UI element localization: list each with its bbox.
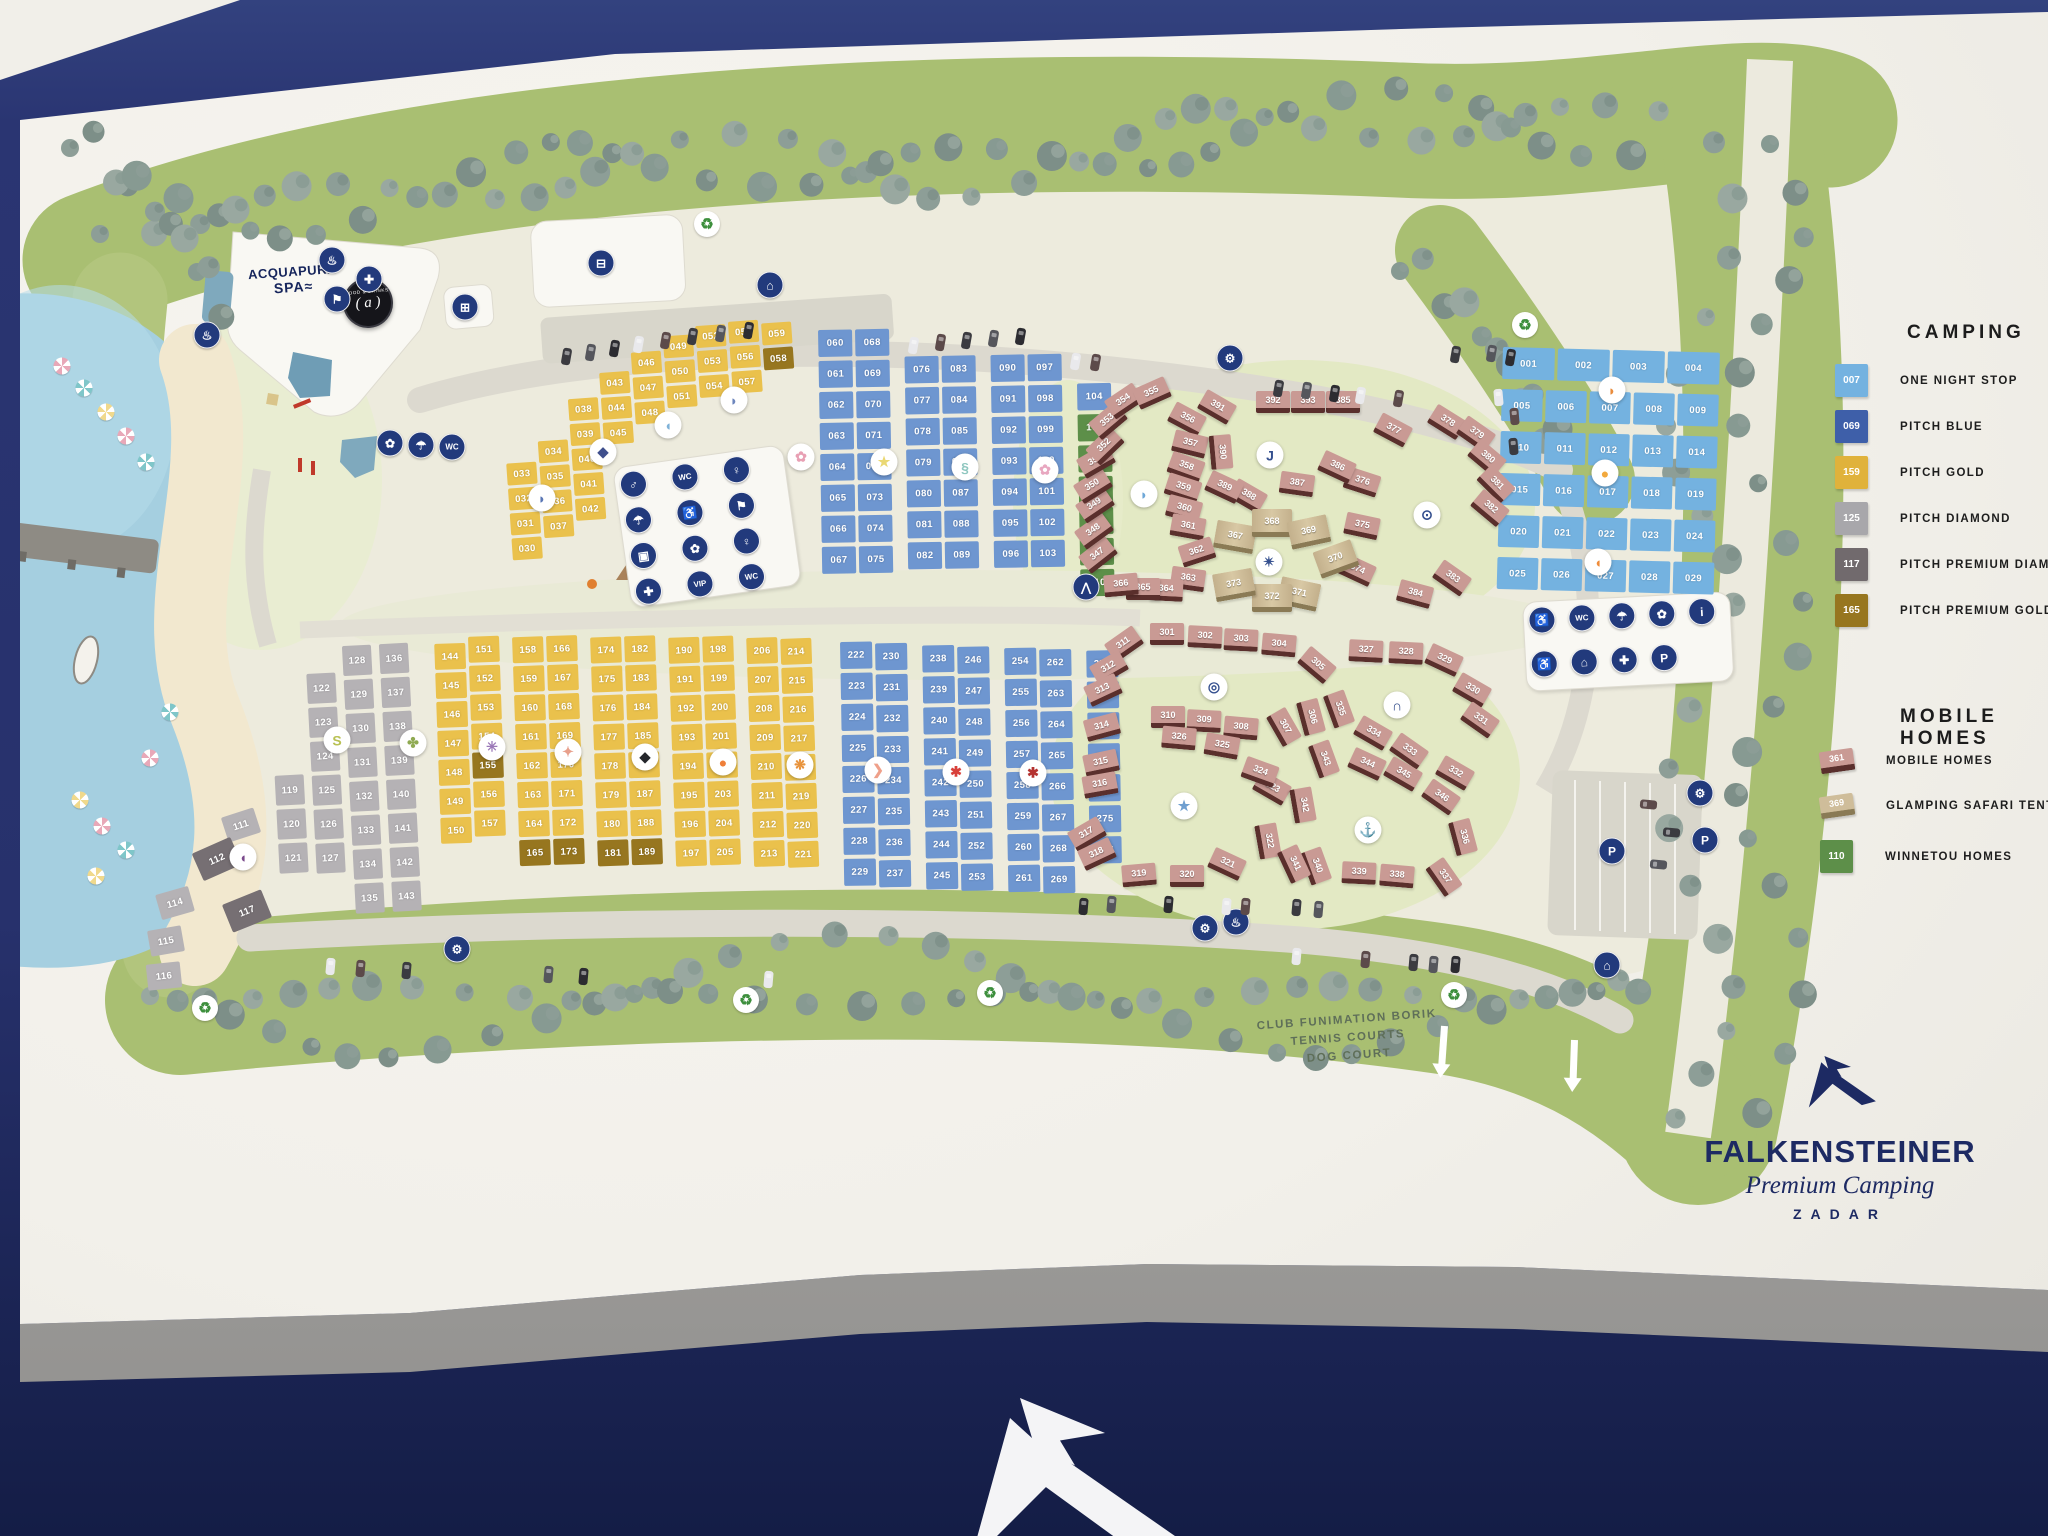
pitch-061: 061 [819, 360, 853, 388]
pitch-018: 018 [1631, 476, 1673, 509]
pitch-120: 120 [276, 808, 307, 839]
shrimp-marker: ❯ [865, 757, 892, 784]
pitch-099: 099 [1029, 416, 1063, 444]
pitch-252: 252 [960, 832, 992, 860]
pitch-180: 180 [596, 810, 628, 837]
pitch-019: 019 [1675, 478, 1717, 511]
pitch-206: 206 [746, 637, 778, 664]
pitch-229: 229 [844, 858, 876, 886]
car [401, 962, 411, 980]
pitch-082: 082 [908, 542, 942, 570]
pitch-030: 030 [511, 536, 542, 560]
beach-umbrella [76, 380, 93, 397]
pitch-188: 188 [630, 809, 662, 836]
pitch-262: 262 [1039, 649, 1071, 677]
pitch-132: 132 [349, 780, 380, 811]
legend-swatch-361: 361 [1819, 748, 1856, 775]
jellyfish-marker: ✿ [788, 444, 815, 471]
car [1640, 799, 1658, 809]
whale-marker: ◖ [655, 412, 682, 439]
pitch-150: 150 [440, 817, 472, 844]
pitch-146: 146 [436, 701, 468, 728]
pitch-076: 076 [904, 356, 938, 384]
pitch-161: 161 [515, 723, 547, 750]
legend-item-mobile-homes: 361MOBILE HOMES [1820, 750, 1993, 772]
pitch-089: 089 [945, 541, 979, 569]
services-icon-7: ⌂ [1570, 648, 1598, 676]
pitch-203: 203 [707, 780, 739, 807]
pitch-255: 255 [1005, 679, 1037, 707]
services-icon-2: WC [1568, 604, 1596, 632]
services-icon-9: P [1650, 643, 1678, 671]
hermit-crab-marker: ❋ [787, 752, 814, 779]
services-icon-8: ✚ [1610, 646, 1638, 674]
pitch-143: 143 [391, 880, 422, 911]
pitch-269: 269 [1043, 866, 1075, 894]
pitch-263: 263 [1040, 680, 1072, 708]
pitch-148: 148 [438, 759, 470, 786]
legend-mobile-title: MOBILE HOMES [1900, 706, 2048, 750]
pitch-159: 159 [513, 665, 545, 692]
sanitary-icon-8: ✿ [680, 533, 710, 563]
services-icon-1: ♿ [1528, 606, 1556, 634]
legend-label: PITCH PREMIUM DIAMOND [1900, 559, 2048, 571]
pitch-153: 153 [470, 694, 502, 721]
pitch-246: 246 [957, 646, 989, 674]
squid-marker: ✦ [555, 739, 582, 766]
sanitary-icon-2: WC [670, 462, 700, 492]
pitch-210: 210 [750, 753, 782, 780]
swing-pole-2 [311, 461, 315, 475]
legend-item-one-night-stop: 007ONE NIGHT STOP [1835, 364, 2018, 397]
pitch-195: 195 [673, 782, 705, 809]
legend-item-winnetou-homes: 110WINNETOU HOMES [1820, 840, 2012, 873]
eel-marker: S [324, 727, 351, 754]
brand-city: ZADAR [1660, 1206, 2020, 1222]
workshop-icon: ⚙ [444, 936, 471, 963]
legend-item-pitch-premium-gold: 165PITCH PREMIUM GOLD [1835, 594, 2048, 627]
pitch-190: 190 [668, 637, 700, 664]
pitch-178: 178 [594, 752, 626, 779]
pitch-065: 065 [821, 484, 855, 512]
sanitary-icon-12: WC [736, 561, 766, 591]
pitch-020: 020 [1498, 515, 1540, 548]
beach-umbrella [98, 404, 115, 421]
pitch-136: 136 [379, 643, 410, 674]
sanitary-icon-4: ☂ [623, 505, 653, 535]
car [1106, 896, 1116, 914]
pitch-149: 149 [439, 788, 471, 815]
beach-umbrella [54, 358, 71, 375]
pitch-091: 091 [991, 385, 1025, 413]
pitch-042: 042 [575, 497, 606, 521]
pitch-125: 125 [312, 774, 343, 805]
pitch-021: 021 [1542, 516, 1584, 549]
anchor-marker: ⚓ [1355, 817, 1382, 844]
car [763, 971, 773, 989]
pitch-056: 056 [730, 345, 761, 369]
fitness-icon: ⚑ [324, 286, 351, 313]
legend-swatch-159: 159 [1835, 456, 1868, 489]
legend-item-pitch-diamond: 125PITCH DIAMOND [1835, 502, 2011, 535]
pitch-227: 227 [843, 796, 875, 824]
pitch-088: 088 [944, 510, 978, 538]
legend-swatch-369: 369 [1819, 793, 1856, 820]
pitch-029: 029 [1673, 562, 1715, 595]
pitch-096: 096 [994, 540, 1028, 568]
pitch-167: 167 [547, 664, 579, 691]
pitch-209: 209 [749, 724, 781, 751]
mobile-home-339: 339 [1341, 861, 1376, 885]
pitch-024: 024 [1674, 520, 1716, 553]
pitch-071: 071 [857, 422, 891, 450]
pitch-133: 133 [351, 814, 382, 845]
pitch-201: 201 [705, 723, 737, 750]
pitch-068: 068 [855, 329, 889, 357]
pitch-224: 224 [841, 703, 873, 731]
pitch-080: 080 [907, 480, 941, 508]
pitch-222: 222 [840, 641, 872, 669]
legend-swatch-165: 165 [1835, 594, 1868, 627]
beach-umbrella [118, 428, 135, 445]
pitch-078: 078 [906, 418, 940, 446]
mobile-home-390: 390 [1209, 434, 1234, 470]
beach-umbrella [88, 868, 105, 885]
pitch-220: 220 [786, 812, 818, 839]
car [1509, 408, 1519, 426]
pitch-102: 102 [1030, 509, 1064, 537]
pitch-121: 121 [278, 842, 309, 873]
pitch-237: 237 [879, 860, 911, 888]
seahorse-marker: § [952, 454, 979, 481]
beach-umbrella [72, 792, 89, 809]
sanitary-icon-9: ♀ [731, 526, 761, 556]
direction-arrow-2 [1570, 1040, 1578, 1080]
parking-icon: P [1599, 838, 1626, 865]
tent-pitch-icon: ⋀ [1073, 574, 1100, 601]
pitch-232: 232 [876, 705, 908, 733]
legend-label: PITCH DIAMOND [1900, 513, 2011, 525]
pitch-238: 238 [922, 645, 954, 673]
first-aid-icon: ✚ [356, 266, 383, 293]
pitch-205: 205 [709, 838, 741, 865]
car [1663, 827, 1681, 837]
pitch-228: 228 [843, 827, 875, 855]
shuttle-marker: ⊙ [1414, 502, 1441, 529]
caravan-icon: ⌂ [1594, 952, 1621, 979]
legend-item-pitch-premium-diamond: 117PITCH PREMIUM DIAMOND [1835, 548, 2048, 581]
lifering-marker: ◎ [1201, 674, 1228, 701]
pitch-212: 212 [752, 811, 784, 838]
sanitary-building: ♂WC♀☂♿⚑▣✿♀✚VIPWC [612, 444, 802, 609]
pitch-147: 147 [437, 730, 469, 757]
pitch-193: 193 [671, 724, 703, 751]
pitch-230: 230 [875, 643, 907, 671]
pitch-214: 214 [780, 638, 812, 665]
pitch-156: 156 [473, 781, 505, 808]
pitch-244: 244 [925, 831, 957, 859]
legend-label: MOBILE HOMES [1886, 755, 1993, 767]
legend-swatch-110: 110 [1820, 840, 1853, 873]
pitch-261: 261 [1008, 865, 1040, 893]
pitch-043: 043 [599, 371, 630, 395]
pitch-243: 243 [925, 800, 957, 828]
pitch-131: 131 [347, 746, 378, 777]
pitch-025: 025 [1497, 557, 1539, 590]
pitch-198: 198 [702, 636, 734, 663]
pitch-044: 044 [601, 396, 632, 420]
pitch-211: 211 [751, 782, 783, 809]
pitch-213: 213 [753, 840, 785, 867]
recycling-icon-2: ♻ [1512, 312, 1538, 338]
mobile-home-310: 310 [1151, 706, 1185, 728]
pitch-173: 173 [553, 838, 585, 865]
lobster-marker: ✱ [1020, 760, 1047, 787]
pitch-011: 011 [1544, 432, 1586, 465]
pitch-033: 033 [506, 462, 537, 486]
glamping-tent-372: 372 [1252, 584, 1292, 612]
legend-swatch-125: 125 [1835, 502, 1868, 535]
beach-umbrella [94, 818, 111, 835]
pitch-245: 245 [926, 862, 958, 890]
pitch-031: 031 [510, 511, 541, 535]
car [1450, 956, 1460, 974]
pitch-189: 189 [631, 838, 663, 865]
falcon-icon [1792, 1056, 1888, 1134]
services-building: ♿WC☂✿i♿⌂✚P [1522, 591, 1734, 692]
services-icon-6: ♿ [1530, 650, 1558, 678]
pitch-207: 207 [747, 666, 779, 693]
pitch-062: 062 [819, 391, 853, 419]
bluestar-marker: ★ [1171, 793, 1198, 820]
pitch-034: 034 [538, 439, 569, 463]
octopus-marker: ✳ [479, 734, 506, 761]
pitch-182: 182 [624, 635, 656, 662]
pitch-051: 051 [666, 384, 697, 408]
mobile-home-328: 328 [1388, 641, 1423, 665]
car [1408, 954, 1418, 972]
pitch-231: 231 [876, 674, 908, 702]
sanitary-icon-11: VIP [685, 569, 715, 599]
services-icon-4: ✿ [1648, 600, 1676, 628]
pitch-204: 204 [708, 809, 740, 836]
pitch-145: 145 [435, 672, 467, 699]
photo-of-campsite-map-sign: ACQUAPURA SPA≈ FOOD & DRINKS ( a ) CLUB … [0, 0, 2048, 1536]
starfish-marker: ★ [871, 449, 898, 476]
legend-label: ONE NIGHT STOP [1900, 375, 2018, 387]
mobile-home-303: 303 [1223, 628, 1258, 652]
pitch-079: 079 [906, 449, 940, 477]
pitch-187: 187 [629, 780, 661, 807]
pitch-183: 183 [625, 664, 657, 691]
falcon-icon-frame [920, 1398, 1220, 1536]
car [1291, 899, 1301, 917]
legend-swatch-007: 007 [1835, 364, 1868, 397]
pitch-066: 066 [821, 515, 855, 543]
pitch-006: 006 [1545, 390, 1587, 423]
pitch-176: 176 [592, 694, 624, 721]
pitch-016: 016 [1543, 474, 1585, 507]
pitch-199: 199 [703, 665, 735, 692]
pitch-197: 197 [675, 840, 707, 867]
pitch-050: 050 [664, 359, 695, 383]
pitch-063: 063 [820, 422, 854, 450]
pitch-083: 083 [941, 355, 975, 383]
car [1360, 951, 1370, 969]
pitch-171: 171 [551, 780, 583, 807]
legend-label: GLAMPING SAFARI TENT [1886, 800, 2048, 812]
baby-room-icon: ✿ [377, 430, 404, 457]
dolphin-marker: ◗ [529, 485, 556, 512]
legend-label: PITCH BLUE [1900, 421, 1983, 433]
pitch-028: 028 [1629, 560, 1671, 593]
pitch-137: 137 [381, 677, 412, 708]
pitch-217: 217 [783, 725, 815, 752]
pitch-168: 168 [548, 693, 580, 720]
car [1313, 901, 1323, 919]
goldfish-marker: ● [1592, 460, 1619, 487]
car [578, 968, 588, 986]
legend-label: PITCH PREMIUM GOLD [1900, 605, 2048, 617]
service-icon: ⚙ [1217, 345, 1244, 372]
pitch-084: 084 [942, 386, 976, 414]
anemone-marker: ✿ [1032, 457, 1059, 484]
food-badge-logo: ( a ) [344, 293, 391, 314]
pitch-256: 256 [1005, 710, 1037, 738]
pitch-093: 093 [992, 447, 1026, 475]
mobile-home-304: 304 [1261, 633, 1297, 658]
pitch-235: 235 [878, 798, 910, 826]
pitch-127: 127 [315, 842, 346, 873]
pitch-134: 134 [353, 848, 384, 879]
dolphin2-marker: ◗ [721, 387, 748, 414]
pitch-208: 208 [748, 695, 780, 722]
services-icon-3: ☂ [1608, 602, 1636, 630]
pitch-221: 221 [787, 841, 819, 868]
brand-tagline: Premium Camping [1660, 1172, 2020, 1200]
shower-icon: ☂ [408, 432, 435, 459]
pitch-014: 014 [1676, 436, 1718, 469]
pitch-077: 077 [905, 387, 939, 415]
bluefish-marker: ◗ [1131, 481, 1158, 508]
pitch-041: 041 [573, 472, 604, 496]
pitch-128: 128 [342, 645, 373, 676]
pitch-151: 151 [468, 636, 500, 663]
legend-label: WINNETOU HOMES [1885, 851, 2012, 863]
car [325, 958, 335, 976]
recycling-icon-4: ♻ [733, 987, 759, 1013]
mobile-home-338: 338 [1379, 864, 1415, 889]
pitch-174: 174 [590, 636, 622, 663]
pitch-087: 087 [944, 479, 978, 507]
pitch-002: 002 [1557, 348, 1610, 381]
pitch-090: 090 [990, 354, 1024, 382]
pitch-142: 142 [390, 846, 421, 877]
pitch-166: 166 [546, 635, 578, 662]
mobile-home-366: 366 [1103, 573, 1139, 598]
pitch-098: 098 [1028, 385, 1062, 413]
sanitary-icon-6: ⚑ [726, 490, 756, 520]
sanitary-icon-3: ♀ [721, 454, 751, 484]
mobile-home-387: 387 [1279, 471, 1316, 498]
pitch-116: 116 [146, 961, 183, 990]
mobile-home-319: 319 [1121, 863, 1157, 888]
legend-item-pitch-blue: 069PITCH BLUE [1835, 410, 1983, 443]
pitch-196: 196 [674, 811, 706, 838]
pitch-005: 005 [1501, 389, 1543, 422]
pitch-144: 144 [434, 643, 466, 670]
sanitary-icon-10: ✚ [633, 576, 663, 606]
legend-swatch-069: 069 [1835, 410, 1868, 443]
pitch-075: 075 [859, 546, 893, 574]
beach-umbrella [118, 842, 135, 859]
legend-swatch-117: 117 [1835, 548, 1868, 581]
pitch-059: 059 [761, 321, 792, 345]
recycling-icon-6: ♻ [1441, 982, 1467, 1008]
pitch-053: 053 [697, 349, 728, 373]
pitch-160: 160 [514, 694, 546, 721]
pitch-175: 175 [591, 665, 623, 692]
pitch-037: 037 [543, 514, 574, 538]
brand-logo: FALKENSTEINER Premium Camping ZADAR [1660, 1056, 2020, 1222]
pitch-097: 097 [1027, 354, 1061, 382]
car [543, 966, 553, 984]
massage-icon: ♨ [319, 247, 346, 274]
wc-icon: WC [439, 434, 466, 461]
pitch-177: 177 [593, 723, 625, 750]
orangefish-marker: ◖ [1585, 549, 1612, 576]
spa-lounger-icon: ♨ [194, 322, 221, 349]
pitch-191: 191 [669, 666, 701, 693]
legend-camping: CAMPING 007ONE NIGHT STOP069PITCH BLUE15… [1835, 322, 2048, 652]
reception-icon: ⌂ [757, 272, 784, 299]
pitch-073: 073 [858, 484, 892, 512]
car [1291, 948, 1301, 966]
pitch-194: 194 [672, 753, 704, 780]
pitch-247: 247 [958, 677, 990, 705]
pitch-223: 223 [841, 672, 873, 700]
recycling-icon-5: ♻ [977, 980, 1003, 1006]
purplefish-marker: ◖ [230, 844, 257, 871]
car [1240, 898, 1250, 916]
pitch-248: 248 [958, 708, 990, 736]
kids-figure [587, 579, 597, 589]
pitch-023: 023 [1630, 518, 1672, 551]
pitch-038: 038 [568, 397, 599, 421]
pitch-060: 060 [818, 329, 852, 357]
pitch-219: 219 [785, 783, 817, 810]
beach-umbrella [162, 704, 179, 721]
pitch-026: 026 [1541, 558, 1583, 591]
pitch-165: 165 [519, 839, 551, 866]
pitch-158: 158 [512, 636, 544, 663]
hook-marker: J [1257, 442, 1284, 469]
pitch-140: 140 [386, 778, 417, 809]
beach-umbrella [138, 454, 155, 471]
pitch-058: 058 [763, 346, 794, 370]
car-rental-icon: P [1692, 827, 1719, 854]
pitch-192: 192 [670, 695, 702, 722]
beach-umbrella [142, 750, 159, 767]
pitch-172: 172 [552, 809, 584, 836]
crab-marker: ✱ [943, 759, 970, 786]
recycling-icon-1: ♻ [694, 211, 720, 237]
cart-icon: ⊟ [588, 250, 615, 277]
pitch-240: 240 [923, 707, 955, 735]
turtle-marker: ✤ [400, 730, 427, 757]
pitch-152: 152 [469, 665, 501, 692]
pitch-200: 200 [704, 694, 736, 721]
